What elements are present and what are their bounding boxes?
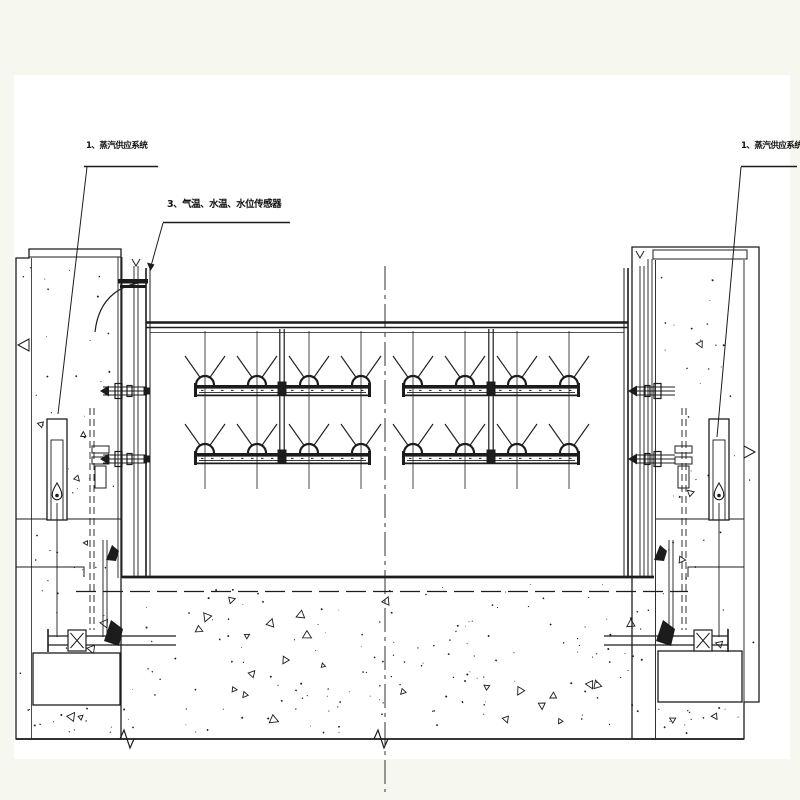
engineering-drawing-page: 1、蒸汽供应系统 3、气温、水温、水位传感器 1、蒸汽供应系统: [0, 0, 800, 800]
label-steam-system-right: 1、蒸汽供应系统: [741, 142, 800, 151]
drawing-canvas: [0, 0, 800, 800]
label-steam-system-left: 1、蒸汽供应系统: [86, 142, 147, 151]
label-sensors: 3、气温、水温、水位传感器: [167, 200, 281, 210]
